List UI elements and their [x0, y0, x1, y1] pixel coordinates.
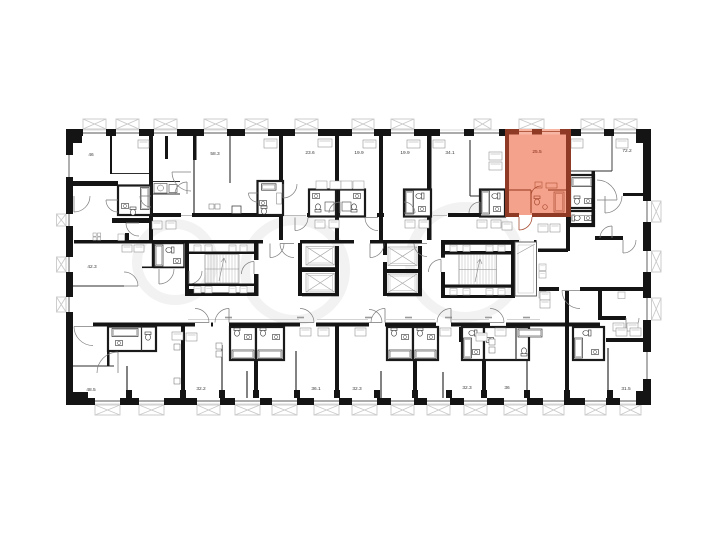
- svg-text:32.3: 32.3: [352, 386, 362, 392]
- svg-text:46: 46: [88, 152, 94, 158]
- svg-text:58.3: 58.3: [210, 151, 220, 157]
- svg-text:23.6: 23.6: [305, 150, 315, 156]
- svg-text:34.1: 34.1: [445, 150, 455, 156]
- svg-text:48.5: 48.5: [86, 387, 96, 393]
- svg-text:36.1: 36.1: [311, 386, 321, 392]
- svg-text:19.9: 19.9: [400, 150, 410, 156]
- svg-text:31.5: 31.5: [621, 386, 631, 392]
- svg-text:72.2: 72.2: [622, 148, 632, 154]
- svg-text:32.3: 32.3: [462, 385, 472, 391]
- svg-text:25.5: 25.5: [532, 149, 542, 155]
- svg-text:19.9: 19.9: [354, 150, 364, 156]
- svg-text:32.2: 32.2: [196, 386, 206, 392]
- svg-text:42.3: 42.3: [87, 264, 97, 270]
- svg-text:36: 36: [504, 385, 510, 391]
